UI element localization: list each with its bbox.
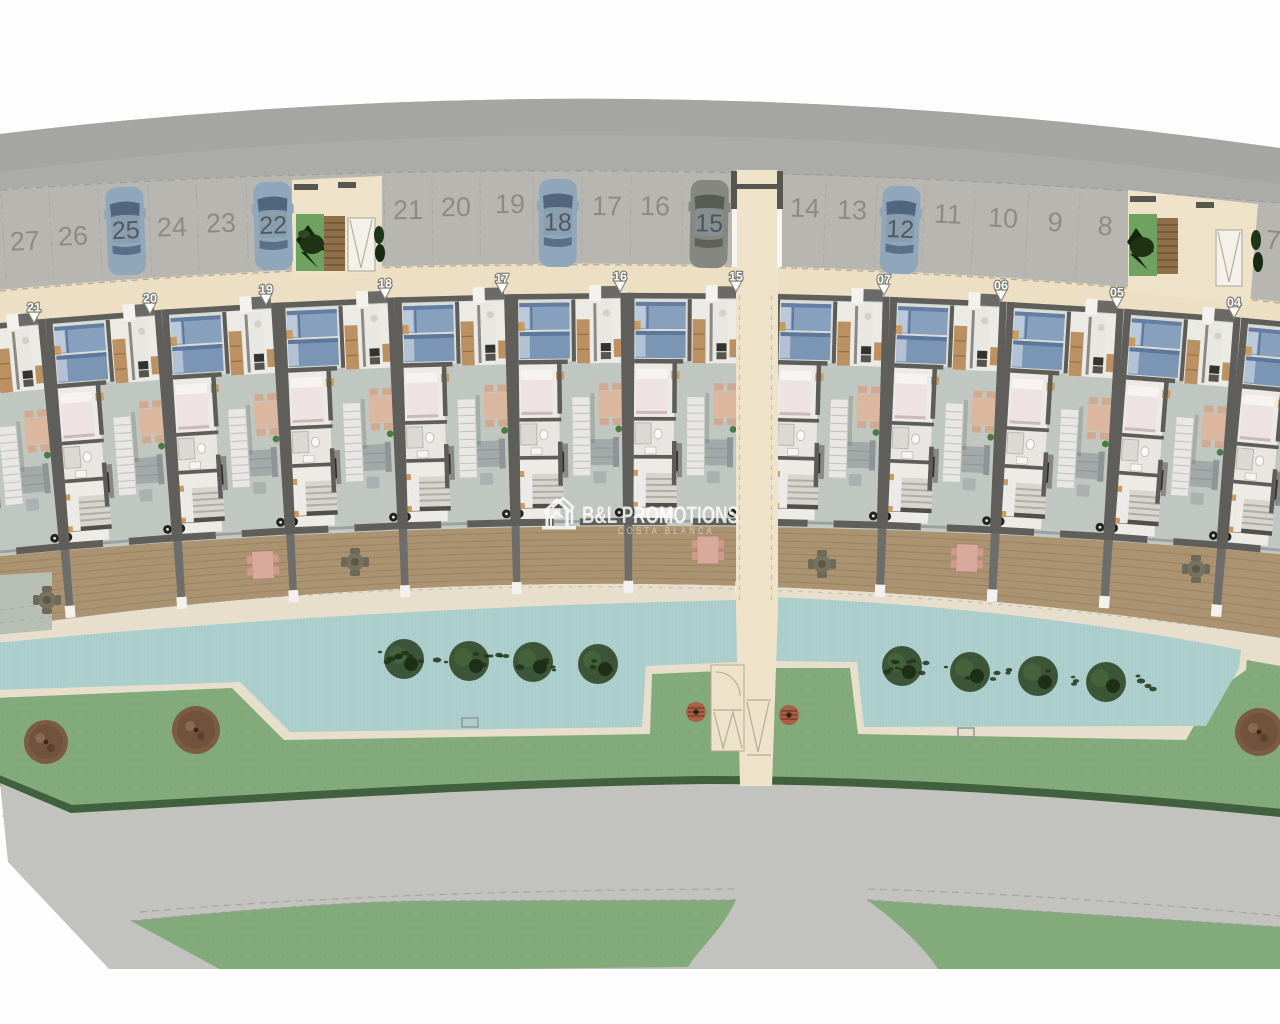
svg-text:27: 27 <box>9 225 41 257</box>
svg-text:COSTA BLANCA: COSTA BLANCA <box>618 526 715 537</box>
svg-text:7: 7 <box>1264 225 1280 256</box>
svg-text:06: 06 <box>994 278 1008 292</box>
svg-text:24: 24 <box>156 212 187 243</box>
svg-text:B&L PROMOTIONS: B&L PROMOTIONS <box>582 502 739 529</box>
svg-text:18: 18 <box>544 209 572 237</box>
svg-text:18: 18 <box>378 276 392 290</box>
svg-text:10: 10 <box>987 202 1019 233</box>
svg-text:05: 05 <box>1110 285 1124 299</box>
svg-text:20: 20 <box>143 291 157 305</box>
svg-text:15: 15 <box>695 209 723 238</box>
svg-text:9: 9 <box>1047 207 1064 238</box>
svg-text:04: 04 <box>1227 295 1241 309</box>
svg-text:07: 07 <box>877 272 891 286</box>
svg-text:12: 12 <box>886 215 915 244</box>
svg-text:25: 25 <box>111 216 140 245</box>
svg-text:21: 21 <box>27 300 41 314</box>
svg-text:16: 16 <box>613 269 627 283</box>
svg-text:22: 22 <box>259 211 288 240</box>
svg-text:21: 21 <box>393 195 423 225</box>
svg-text:8: 8 <box>1097 211 1114 242</box>
svg-text:23: 23 <box>205 208 236 239</box>
svg-text:19: 19 <box>495 189 525 219</box>
svg-text:19: 19 <box>259 282 273 296</box>
svg-text:15: 15 <box>729 269 743 283</box>
svg-text:17: 17 <box>495 271 509 285</box>
svg-text:17: 17 <box>592 191 622 221</box>
svg-text:20: 20 <box>441 192 471 222</box>
svg-text:11: 11 <box>933 199 962 230</box>
svg-text:14: 14 <box>790 193 821 224</box>
svg-text:13: 13 <box>837 195 868 226</box>
svg-text:16: 16 <box>640 191 670 221</box>
svg-text:26: 26 <box>57 220 88 251</box>
